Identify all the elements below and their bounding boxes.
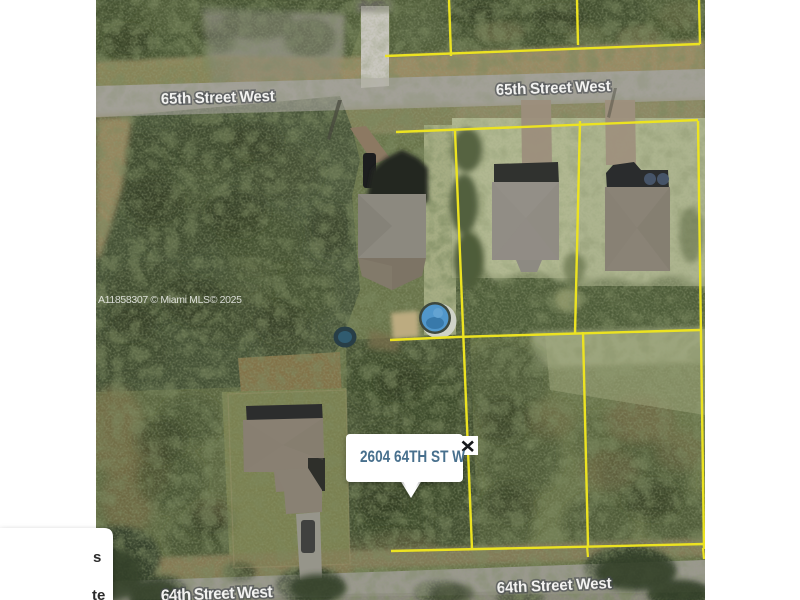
svg-text:65th Street West: 65th Street West bbox=[161, 88, 275, 108]
svg-text:te: te bbox=[92, 587, 105, 600]
svg-text:64th Street West: 64th Street West bbox=[161, 583, 274, 600]
svg-text:A11858307 © Miami MLS© 2025: A11858307 © Miami MLS© 2025 bbox=[98, 294, 242, 306]
svg-text:s: s bbox=[93, 549, 101, 566]
svg-text:2604 64TH ST W: 2604 64TH ST W bbox=[360, 447, 466, 466]
